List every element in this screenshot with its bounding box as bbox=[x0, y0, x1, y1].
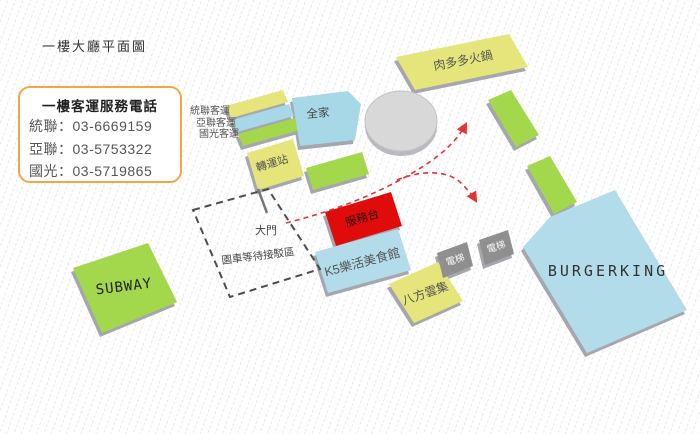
pillar-shape bbox=[365, 91, 437, 151]
bus-label-uljoin: 統聯客運 bbox=[184, 106, 240, 118]
family-mart-label: 全家 bbox=[306, 104, 330, 122]
gate-wall-line bbox=[258, 189, 267, 213]
phone-info-box: 一樓客運服務電話 統聯：03-6669159 亞聯：03-5753322 國光：… bbox=[18, 86, 182, 183]
shuttle-waiting-zone-outline bbox=[193, 189, 320, 297]
floor-plan-canvas: 一樓大廳平面圖 一樓客運服務電話 統聯：03-6669159 亞聯：03-575… bbox=[0, 0, 700, 434]
burger-king-label: BURGERKING bbox=[548, 262, 668, 280]
bus-label-kingbus: 國光客運 bbox=[184, 129, 240, 141]
main-gate-label: 大門 bbox=[255, 222, 277, 238]
page-title: 一樓大廳平面圖 bbox=[42, 36, 147, 55]
bus-label-yalian: 亞聯客運 bbox=[184, 118, 240, 130]
route-arrow-down bbox=[397, 173, 476, 201]
phone-line-kingbus: 國光：03-5719865 bbox=[29, 160, 180, 183]
phone-line-yalian: 亞聯：03-5753322 bbox=[29, 138, 180, 161]
phone-box-title: 一樓客運服務電話 bbox=[20, 95, 180, 115]
bus-company-labels: 統聯客運 亞聯客運 國光客運 bbox=[184, 106, 240, 141]
phone-line-uljoin: 統聯：03-6669159 bbox=[29, 115, 180, 138]
